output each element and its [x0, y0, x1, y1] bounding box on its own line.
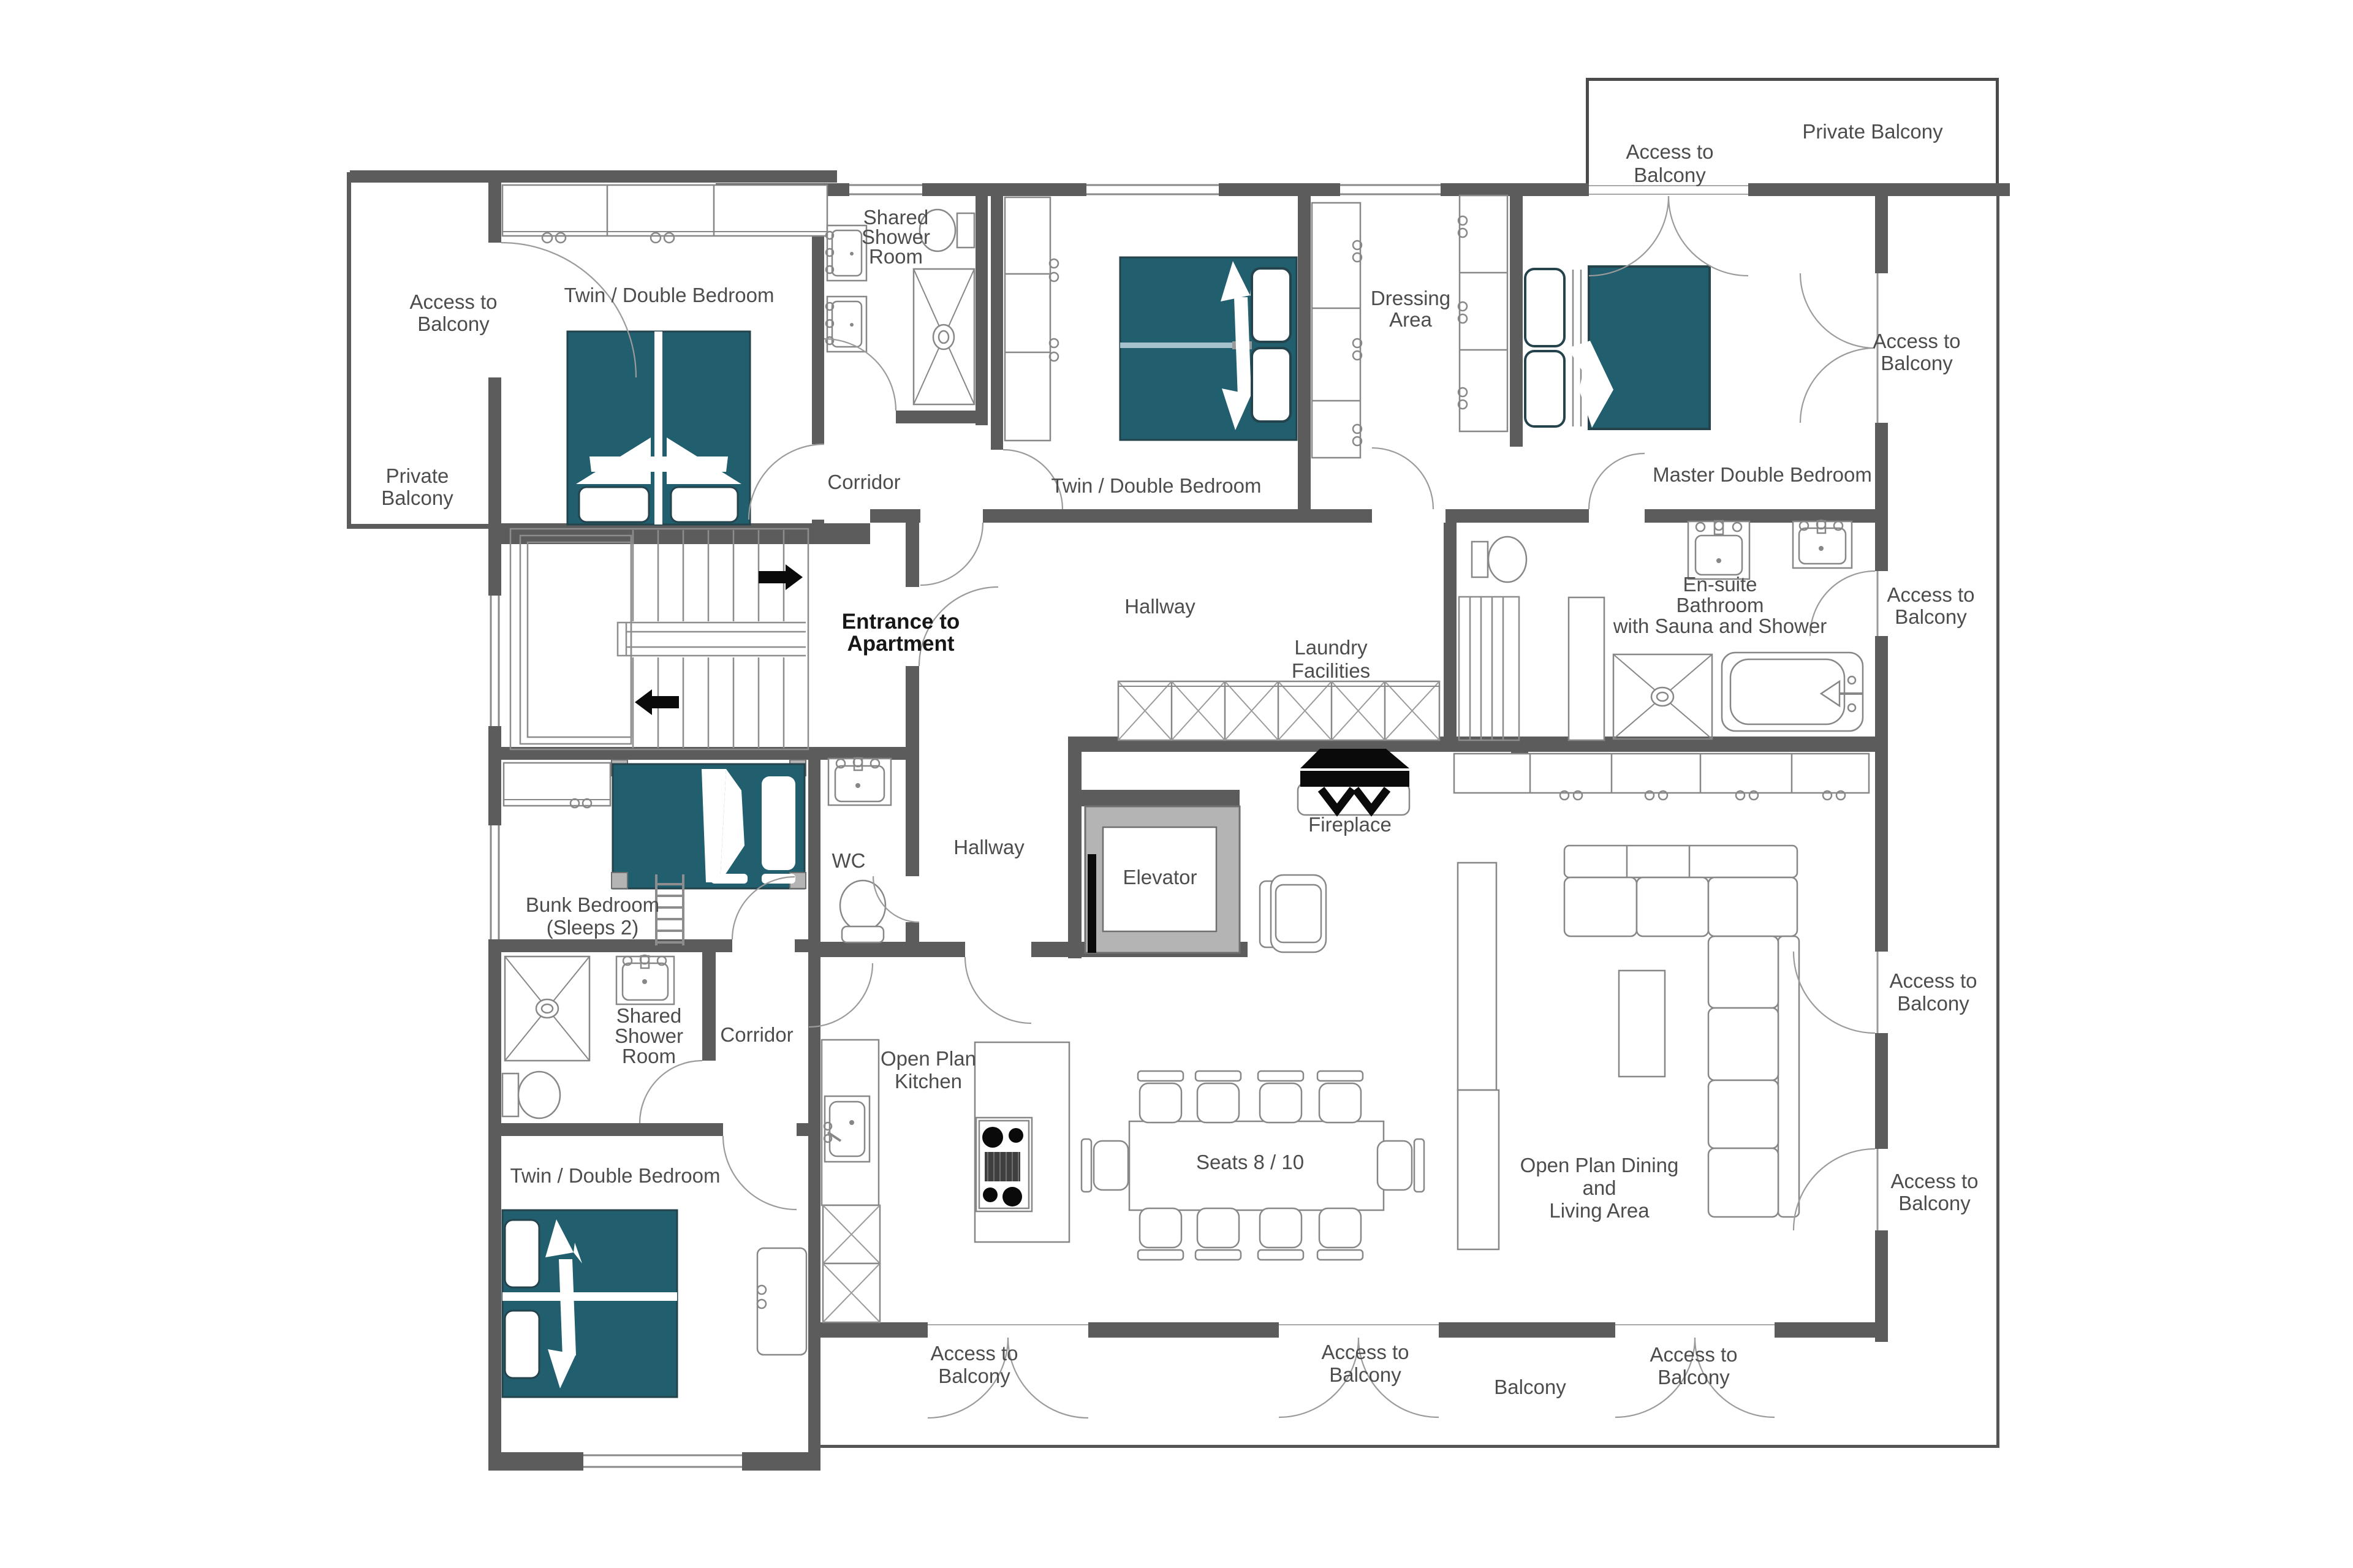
svg-text:Open Plan Dining: Open Plan Dining [1520, 1154, 1679, 1176]
svg-text:Apartment: Apartment [847, 632, 954, 656]
svg-text:Balcony: Balcony [1329, 1363, 1401, 1386]
svg-text:Facilities: Facilities [1292, 659, 1370, 682]
svg-text:Fireplace: Fireplace [1308, 813, 1392, 836]
svg-text:Elevator: Elevator [1123, 866, 1197, 888]
svg-text:Room: Room [622, 1045, 676, 1067]
svg-text:Dressing: Dressing [1371, 287, 1450, 309]
svg-text:Kitchen: Kitchen [895, 1070, 962, 1093]
svg-text:Master Double Bedroom: Master Double Bedroom [1653, 463, 1872, 486]
svg-text:Balcony: Balcony [938, 1365, 1010, 1387]
svg-text:Shower: Shower [615, 1025, 683, 1047]
svg-text:Room: Room [869, 245, 923, 268]
svg-text:Hallway: Hallway [953, 836, 1025, 858]
svg-text:WC: WC [832, 849, 866, 872]
svg-text:Access to: Access to [930, 1342, 1018, 1365]
svg-text:Access to: Access to [1321, 1341, 1409, 1363]
svg-text:Access to: Access to [1889, 969, 1977, 992]
svg-text:Balcony: Balcony [1898, 1192, 1971, 1214]
svg-text:Laundry: Laundry [1294, 636, 1368, 659]
svg-text:Living Area: Living Area [1549, 1199, 1650, 1222]
svg-text:Corridor: Corridor [827, 471, 900, 493]
svg-text:Private Balcony: Private Balcony [1802, 120, 1943, 143]
svg-text:Balcony: Balcony [1881, 352, 1953, 374]
svg-text:Private: Private [386, 464, 449, 487]
svg-text:Area: Area [1389, 308, 1432, 331]
svg-text:Open Plan: Open Plan [881, 1047, 976, 1070]
svg-text:Seats 8 / 10: Seats 8 / 10 [1196, 1151, 1304, 1173]
svg-text:Corridor: Corridor [720, 1023, 793, 1046]
svg-text:Twin / Double Bedroom: Twin / Double Bedroom [510, 1164, 720, 1187]
svg-text:Balcony: Balcony [1634, 164, 1706, 186]
svg-text:Bathroom: Bathroom [1676, 594, 1764, 616]
svg-text:En-suite: En-suite [1683, 573, 1757, 596]
svg-text:Access to: Access to [1890, 1170, 1978, 1192]
svg-text:Balcony: Balcony [417, 312, 490, 335]
svg-text:Balcony: Balcony [381, 487, 453, 509]
svg-text:Twin / Double Bedroom: Twin / Double Bedroom [564, 284, 774, 306]
svg-text:Access to: Access to [409, 290, 497, 313]
svg-text:Balcony: Balcony [1494, 1376, 1566, 1398]
svg-text:Twin / Double Bedroom: Twin / Double Bedroom [1051, 474, 1261, 497]
svg-text:Shared: Shared [616, 1004, 681, 1027]
svg-text:Balcony: Balcony [1897, 992, 1969, 1015]
svg-text:Balcony: Balcony [1895, 605, 1967, 628]
svg-text:Bunk Bedroom: Bunk Bedroom [526, 893, 659, 916]
svg-text:Hallway: Hallway [1124, 595, 1195, 618]
svg-text:Balcony: Balcony [1658, 1366, 1730, 1388]
svg-text:(Sleeps 2): (Sleeps 2) [547, 916, 638, 939]
svg-text:and: and [1582, 1176, 1616, 1199]
svg-text:Access to: Access to [1887, 583, 1974, 606]
svg-text:Entrance to: Entrance to [842, 610, 960, 634]
svg-text:with Sauna and Shower: with Sauna and Shower [1613, 615, 1827, 637]
svg-text:Access to: Access to [1626, 140, 1713, 163]
svg-text:Access to: Access to [1650, 1343, 1737, 1366]
svg-text:Access to: Access to [1873, 330, 1960, 352]
